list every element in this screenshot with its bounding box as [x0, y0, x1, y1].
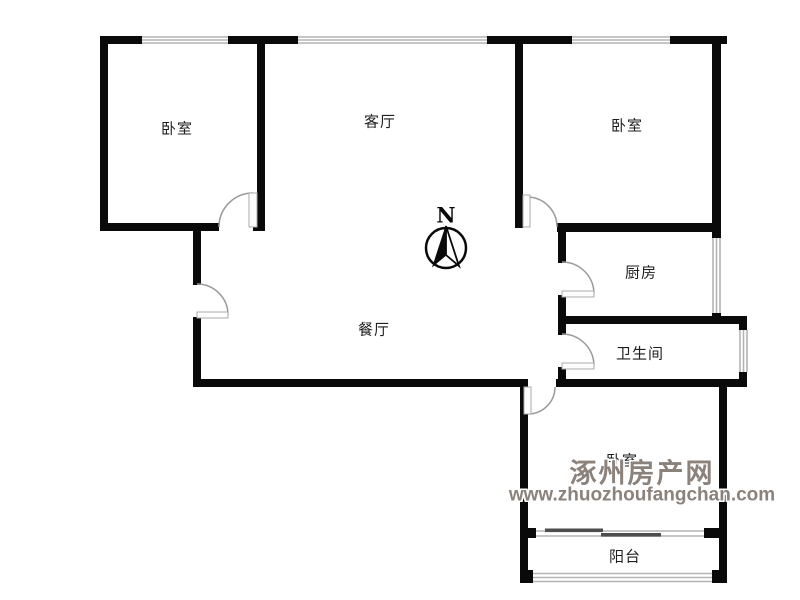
- wall-dining-left: [193, 317, 201, 387]
- wall-left-bedroom3: [520, 387, 528, 583]
- room-label-bedroom-bottom: 卧室: [606, 450, 638, 471]
- window-bathroom: [740, 330, 747, 372]
- room-label-dining-room: 餐厅: [358, 319, 390, 340]
- wall-kitchen-top: [557, 223, 721, 232]
- room-label-bedroom-top-right: 卧室: [611, 115, 643, 136]
- wall-dining-right: [558, 295, 566, 335]
- wall-top: [487, 36, 572, 44]
- window-balcony: [533, 574, 712, 582]
- door-bedroom-bottom: [524, 387, 555, 414]
- walls: [100, 36, 747, 583]
- wall-balcony-stub: [704, 528, 727, 538]
- wall-balcony-corner: [520, 570, 533, 583]
- wall-right-bedroom2: [712, 36, 721, 238]
- room-label-bedroom-top-left: 卧室: [161, 118, 193, 139]
- windows: [142, 37, 747, 582]
- wall-balcony-stub: [520, 528, 536, 538]
- door-kitchen: [562, 262, 594, 297]
- window-bedroom-top-left: [142, 37, 228, 43]
- wall-kitchen-bathroom: [560, 316, 747, 324]
- wall-bottom-main: [193, 379, 528, 387]
- room-label-balcony: 阳台: [609, 546, 641, 567]
- floor-plan-drawing: [0, 0, 800, 600]
- window-kitchen: [713, 238, 720, 313]
- north-compass-icon: [426, 226, 466, 268]
- window-bedroom-top-right: [572, 37, 670, 43]
- room-label-living-room: 客厅: [364, 111, 396, 132]
- sliding-door-balcony: [528, 529, 719, 537]
- wall-bottom-main: [556, 379, 747, 387]
- compass-north-label: N: [436, 203, 455, 228]
- wall-balcony-corner: [712, 570, 727, 583]
- door-dining: [197, 284, 228, 318]
- wall-bottom-bedroom1: [100, 223, 219, 231]
- room-label-kitchen: 厨房: [625, 262, 657, 283]
- window-living-room: [298, 37, 487, 43]
- wall-right-bedroom3: [719, 387, 727, 583]
- wall-living-bedroom2: [515, 36, 523, 228]
- floorplan-canvas: 卧室 客厅 卧室 厨房 餐厅 卫生间 卧室 阳台 N 涿州房产网 www.zhu…: [0, 0, 800, 600]
- wall-dining-right: [558, 232, 566, 263]
- room-label-bathroom: 卫生间: [616, 343, 664, 364]
- wall-left-bedroom1: [100, 36, 108, 230]
- door-bathroom: [562, 334, 594, 369]
- wall-bathroom-right: [739, 316, 747, 330]
- wall-right-bedroom1: [257, 36, 265, 230]
- door-bedroom-top-right: [523, 195, 557, 227]
- wall-dining-left: [193, 230, 201, 285]
- door-bedroom-top-left: [219, 193, 257, 227]
